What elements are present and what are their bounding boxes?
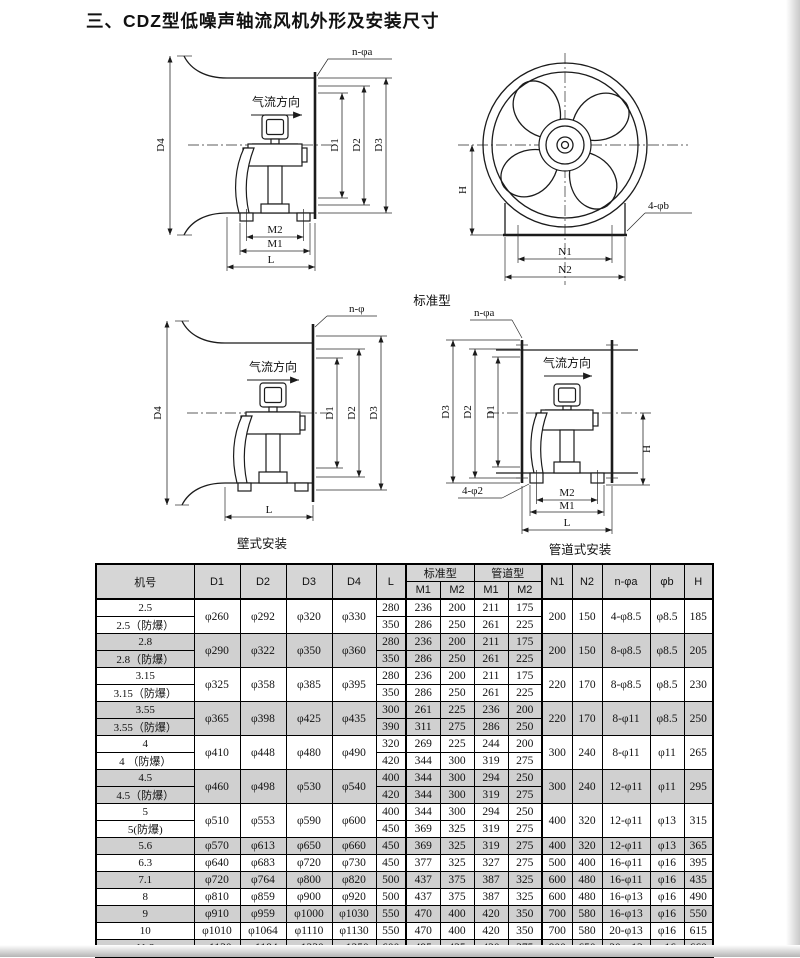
- header-phib: φb: [650, 564, 684, 599]
- d1-cell: φ510: [194, 804, 240, 838]
- h-cell: 365: [684, 838, 713, 855]
- nphia-cell: 4-φ8.5: [602, 599, 650, 634]
- d3-cell: φ650: [286, 838, 332, 855]
- n1-cell: 220: [542, 668, 572, 702]
- m-cell: 261: [406, 702, 440, 719]
- h-cell: 230: [684, 668, 713, 702]
- d2-cell: φ859: [240, 889, 286, 906]
- m-cell: 275: [440, 719, 474, 736]
- m-cell: 294: [474, 770, 508, 787]
- h-cell: 295: [684, 770, 713, 804]
- l-cell: 420: [376, 787, 406, 804]
- n1-cell: 500: [542, 855, 572, 872]
- m-cell: 319: [474, 787, 508, 804]
- dim-label-d1: D1: [324, 406, 336, 419]
- m-cell: 225: [440, 736, 474, 753]
- m-cell: 200: [440, 634, 474, 651]
- d1-cell: φ290: [194, 634, 240, 668]
- table-row: 4.5φ460φ498φ530φ540400344300294250300240…: [96, 770, 713, 787]
- dimension-table: 机号 D1 D2 D3 D4 L 标准型 管道型 N1 N2 n-φa φb H…: [95, 563, 714, 958]
- d1-cell: φ410: [194, 736, 240, 770]
- n1-cell: 700: [542, 906, 572, 923]
- d2-cell: φ398: [240, 702, 286, 736]
- l-cell: 450: [376, 821, 406, 838]
- h-cell: 250: [684, 702, 713, 736]
- d1-cell: φ640: [194, 855, 240, 872]
- h-cell: 265: [684, 736, 713, 770]
- dim-label-m1: M1: [267, 238, 282, 250]
- n2-cell: 150: [572, 634, 602, 668]
- d2-cell: φ358: [240, 668, 286, 702]
- table-row: 10φ1010φ1064φ1110φ1130550470400420350700…: [96, 923, 713, 940]
- standard-side-diagram: 气流方向 D4 D1 D2 D3 n-φa M2 M1 L: [130, 45, 420, 295]
- dim-label-d2: D2: [462, 405, 474, 418]
- m-cell: 200: [508, 702, 542, 719]
- d4-cell: φ540: [332, 770, 376, 804]
- model-cell: 3.15（防爆）: [96, 685, 194, 702]
- m-cell: 236: [406, 599, 440, 617]
- n2-cell: 150: [572, 599, 602, 634]
- n1-cell: 300: [542, 770, 572, 804]
- header-d1: D1: [194, 564, 240, 599]
- flange-holes-label: n-φa: [474, 307, 495, 319]
- phib-cell: φ11: [650, 736, 684, 770]
- wall-mount-diagram: 气流方向 D4 D1 D2 D3 n-φ L: [125, 300, 430, 532]
- m-cell: 377: [406, 855, 440, 872]
- model-cell: 8: [96, 889, 194, 906]
- d4-cell: φ490: [332, 736, 376, 770]
- d3-cell: φ720: [286, 855, 332, 872]
- m-cell: 250: [440, 617, 474, 634]
- m-cell: 311: [406, 719, 440, 736]
- nphia-cell: 16-φ11: [602, 855, 650, 872]
- d4-cell: φ395: [332, 668, 376, 702]
- d4-cell: φ330: [332, 599, 376, 634]
- l-cell: 280: [376, 668, 406, 685]
- table-row: 6.3φ640φ683φ720φ730450377325327275500400…: [96, 855, 713, 872]
- table-row: 8φ810φ859φ900φ92050043737538732560048016…: [96, 889, 713, 906]
- l-cell: 550: [376, 923, 406, 940]
- h-cell: 205: [684, 634, 713, 668]
- d2-cell: φ448: [240, 736, 286, 770]
- nphia-cell: 20-φ13: [602, 923, 650, 940]
- m-cell: 225: [440, 702, 474, 719]
- model-cell: 5(防爆): [96, 821, 194, 838]
- dim-label-d4: D4: [155, 138, 167, 152]
- n2-cell: 480: [572, 889, 602, 906]
- airflow-label: 气流方向: [543, 355, 591, 370]
- m-cell: 225: [508, 651, 542, 668]
- n2-cell: 240: [572, 736, 602, 770]
- nphia-cell: 8-φ11: [602, 736, 650, 770]
- model-cell: 10: [96, 923, 194, 940]
- dim-label-d2: D2: [351, 138, 363, 151]
- model-cell: 4.5: [96, 770, 194, 787]
- m-cell: 236: [474, 702, 508, 719]
- m-cell: 261: [474, 617, 508, 634]
- nphia-cell: 16-φ11: [602, 872, 650, 889]
- dim-label-n2: N2: [558, 264, 571, 276]
- n2-cell: 400: [572, 855, 602, 872]
- m-cell: 250: [508, 804, 542, 821]
- d4-cell: φ820: [332, 872, 376, 889]
- d3-cell: φ800: [286, 872, 332, 889]
- l-cell: 280: [376, 634, 406, 651]
- d3-cell: φ1110: [286, 923, 332, 940]
- m-cell: 269: [406, 736, 440, 753]
- fan-table-body: 2.5φ260φ292φ320φ330280236200211175200150…: [96, 599, 713, 957]
- m-cell: 369: [406, 838, 440, 855]
- header-nphia: n-φa: [602, 564, 650, 599]
- airflow-label: 气流方向: [249, 359, 297, 374]
- nphia-cell: 12-φ11: [602, 838, 650, 855]
- m-cell: 200: [440, 668, 474, 685]
- page-title: 三、CDZ型低噪声轴流风机外形及安装尺寸: [86, 8, 439, 33]
- h-cell: 615: [684, 923, 713, 940]
- m-cell: 300: [440, 753, 474, 770]
- l-cell: 400: [376, 770, 406, 787]
- model-cell: 4 （防爆）: [96, 753, 194, 770]
- phib-cell: φ11: [650, 770, 684, 804]
- m-cell: 327: [474, 855, 508, 872]
- d1-cell: φ570: [194, 838, 240, 855]
- m-cell: 211: [474, 634, 508, 651]
- m-cell: 350: [508, 923, 542, 940]
- h-cell: 550: [684, 906, 713, 923]
- d2-cell: φ498: [240, 770, 286, 804]
- header-duct-type: 管道型: [474, 564, 542, 582]
- model-cell: 2.5（防爆）: [96, 617, 194, 634]
- m-cell: 344: [406, 753, 440, 770]
- l-cell: 400: [376, 804, 406, 821]
- m-cell: 275: [508, 787, 542, 804]
- m-cell: 375: [440, 872, 474, 889]
- m-cell: 344: [406, 787, 440, 804]
- n2-cell: 170: [572, 668, 602, 702]
- h-cell: 185: [684, 599, 713, 634]
- phib-cell: φ8.5: [650, 668, 684, 702]
- m-cell: 387: [474, 872, 508, 889]
- wall-caption: 壁式安装: [222, 533, 302, 552]
- m-cell: 236: [406, 668, 440, 685]
- airflow-label: 气流方向: [252, 94, 300, 109]
- m-cell: 225: [508, 617, 542, 634]
- d1-cell: φ720: [194, 872, 240, 889]
- d4-cell: φ600: [332, 804, 376, 838]
- m-cell: 286: [406, 651, 440, 668]
- flange-holes-label: n-φa: [352, 46, 373, 58]
- m-cell: 437: [406, 872, 440, 889]
- l-cell: 320: [376, 736, 406, 753]
- nphia-cell: 8-φ8.5: [602, 634, 650, 668]
- m-cell: 344: [406, 804, 440, 821]
- phib-cell: φ8.5: [650, 634, 684, 668]
- n2-cell: 320: [572, 838, 602, 855]
- d4-cell: φ920: [332, 889, 376, 906]
- nphia-cell: 8-φ11: [602, 702, 650, 736]
- dim-label-d3: D3: [373, 138, 385, 152]
- header-h: H: [684, 564, 713, 599]
- nphia-cell: 16-φ13: [602, 906, 650, 923]
- d2-cell: φ613: [240, 838, 286, 855]
- header-m2-duct: M2: [508, 582, 542, 600]
- m-cell: 344: [406, 770, 440, 787]
- model-cell: 3.15: [96, 668, 194, 685]
- l-cell: 450: [376, 838, 406, 855]
- model-cell: 3.55: [96, 702, 194, 719]
- document-page: { "title": "三、CDZ型低噪声轴流风机外形及安装尺寸", "capt…: [0, 0, 800, 957]
- d3-cell: φ1000: [286, 906, 332, 923]
- phib-cell: φ13: [650, 804, 684, 838]
- m-cell: 294: [474, 804, 508, 821]
- m-cell: 250: [440, 685, 474, 702]
- m-cell: 275: [508, 838, 542, 855]
- m-cell: 286: [406, 617, 440, 634]
- m-cell: 350: [508, 906, 542, 923]
- d2-cell: φ683: [240, 855, 286, 872]
- m-cell: 286: [406, 685, 440, 702]
- model-cell: 2.8: [96, 634, 194, 651]
- l-cell: 450: [376, 855, 406, 872]
- m-cell: 300: [440, 787, 474, 804]
- model-cell: 2.5: [96, 599, 194, 617]
- n1-cell: 700: [542, 923, 572, 940]
- m-cell: 244: [474, 736, 508, 753]
- d3-cell: φ530: [286, 770, 332, 804]
- h-cell: 395: [684, 855, 713, 872]
- dim-label-m2: M2: [267, 224, 282, 236]
- scan-edge-right: [786, 0, 800, 957]
- n2-cell: 170: [572, 702, 602, 736]
- l-cell: 500: [376, 872, 406, 889]
- m-cell: 319: [474, 753, 508, 770]
- dim-label-d1: D1: [329, 138, 341, 151]
- m-cell: 400: [440, 906, 474, 923]
- d3-cell: φ590: [286, 804, 332, 838]
- header-n2: N2: [572, 564, 602, 599]
- m-cell: 300: [440, 804, 474, 821]
- phib-cell: φ8.5: [650, 599, 684, 634]
- m-cell: 325: [440, 838, 474, 855]
- m-cell: 200: [440, 599, 474, 617]
- l-cell: 420: [376, 753, 406, 770]
- table-row: 5φ510φ553φ590φ60040034430029425040032012…: [96, 804, 713, 821]
- header-m1-duct: M1: [474, 582, 508, 600]
- dim-label-l: L: [268, 254, 275, 266]
- m-cell: 319: [474, 838, 508, 855]
- header-standard-type: 标准型: [406, 564, 474, 582]
- d1-cell: φ910: [194, 906, 240, 923]
- m-cell: 261: [474, 651, 508, 668]
- n1-cell: 200: [542, 599, 572, 634]
- d3-cell: φ900: [286, 889, 332, 906]
- d2-cell: φ764: [240, 872, 286, 889]
- table-row: 7.1φ720φ764φ800φ820500437375387325600480…: [96, 872, 713, 889]
- d4-cell: φ1030: [332, 906, 376, 923]
- table-row: 2.5φ260φ292φ320φ330280236200211175200150…: [96, 599, 713, 617]
- d4-cell: φ730: [332, 855, 376, 872]
- l-cell: 500: [376, 889, 406, 906]
- d2-cell: φ292: [240, 599, 286, 634]
- phib-cell: φ16: [650, 923, 684, 940]
- model-cell: 4.5（防爆）: [96, 787, 194, 804]
- phib-cell: φ16: [650, 889, 684, 906]
- l-cell: 550: [376, 906, 406, 923]
- m-cell: 211: [474, 599, 508, 617]
- d1-cell: φ810: [194, 889, 240, 906]
- n1-cell: 300: [542, 736, 572, 770]
- n1-cell: 400: [542, 838, 572, 855]
- scan-edge-bottom: [0, 945, 800, 957]
- model-cell: 6.3: [96, 855, 194, 872]
- header-n1: N1: [542, 564, 572, 599]
- m-cell: 250: [440, 651, 474, 668]
- nphia-cell: 12-φ11: [602, 770, 650, 804]
- m-cell: 369: [406, 821, 440, 838]
- header-d2: D2: [240, 564, 286, 599]
- m-cell: 286: [474, 719, 508, 736]
- m-cell: 250: [508, 770, 542, 787]
- header-d3: D3: [286, 564, 332, 599]
- d4-cell: φ360: [332, 634, 376, 668]
- m-cell: 325: [440, 855, 474, 872]
- nphia-cell: 16-φ13: [602, 889, 650, 906]
- n1-cell: 220: [542, 702, 572, 736]
- model-cell: 5.6: [96, 838, 194, 855]
- foot-holes-label: 4-φ2: [462, 485, 483, 497]
- m-cell: 420: [474, 906, 508, 923]
- phib-cell: φ13: [650, 838, 684, 855]
- m-cell: 375: [440, 889, 474, 906]
- duct-mount-diagram: 气流方向 D1 D2 D3 H n-φa 4-φ2 M2 M1 L: [430, 300, 730, 540]
- header-m1-std: M1: [406, 582, 440, 600]
- l-cell: 350: [376, 685, 406, 702]
- h-cell: 435: [684, 872, 713, 889]
- d3-cell: φ320: [286, 599, 332, 634]
- n1-cell: 200: [542, 634, 572, 668]
- header-d4: D4: [332, 564, 376, 599]
- l-cell: 350: [376, 651, 406, 668]
- d4-cell: φ660: [332, 838, 376, 855]
- phib-cell: φ16: [650, 906, 684, 923]
- m-cell: 250: [508, 719, 542, 736]
- m-cell: 325: [508, 872, 542, 889]
- model-cell: 2.8（防爆）: [96, 651, 194, 668]
- m-cell: 200: [508, 736, 542, 753]
- n2-cell: 580: [572, 923, 602, 940]
- m-cell: 261: [474, 685, 508, 702]
- duct-caption: 管道式安装: [528, 539, 632, 558]
- dim-label-h: H: [457, 186, 469, 194]
- d4-cell: φ1130: [332, 923, 376, 940]
- table-row: 3.15φ325φ358φ385φ39528023620021117522017…: [96, 668, 713, 685]
- n1-cell: 400: [542, 804, 572, 838]
- dim-label-m2: M2: [559, 487, 574, 499]
- dim-label-l: L: [266, 504, 273, 516]
- n1-cell: 600: [542, 889, 572, 906]
- n2-cell: 320: [572, 804, 602, 838]
- n2-cell: 480: [572, 872, 602, 889]
- d2-cell: φ553: [240, 804, 286, 838]
- m-cell: 300: [440, 770, 474, 787]
- m-cell: 319: [474, 821, 508, 838]
- model-cell: 3.55（防爆）: [96, 719, 194, 736]
- model-cell: 9: [96, 906, 194, 923]
- dim-label-d3: D3: [368, 406, 380, 420]
- header-m2-std: M2: [440, 582, 474, 600]
- l-cell: 300: [376, 702, 406, 719]
- phib-cell: φ16: [650, 872, 684, 889]
- m-cell: 175: [508, 668, 542, 685]
- dim-label-d2: D2: [346, 406, 358, 419]
- m-cell: 387: [474, 889, 508, 906]
- table-row: 3.55φ365φ398φ425φ43530026122523620022017…: [96, 702, 713, 719]
- header-model: 机号: [96, 564, 194, 599]
- d3-cell: φ480: [286, 736, 332, 770]
- phib-cell: φ16: [650, 855, 684, 872]
- m-cell: 275: [508, 821, 542, 838]
- dim-label-n1: N1: [558, 246, 571, 258]
- dim-label-d4: D4: [152, 406, 164, 420]
- table-row: 4φ410φ448φ480φ4903202692252442003002408-…: [96, 736, 713, 753]
- m-cell: 275: [508, 855, 542, 872]
- table-row: 9φ910φ959φ1000φ1030550470400420350700580…: [96, 906, 713, 923]
- m-cell: 211: [474, 668, 508, 685]
- l-cell: 350: [376, 617, 406, 634]
- m-cell: 175: [508, 599, 542, 617]
- flange-holes-label: n-φ: [349, 303, 365, 315]
- m-cell: 175: [508, 634, 542, 651]
- dim-label-l: L: [564, 517, 571, 529]
- base-holes-label: 4-φb: [648, 200, 670, 212]
- d3-cell: φ425: [286, 702, 332, 736]
- nphia-cell: 12-φ11: [602, 804, 650, 838]
- d3-cell: φ350: [286, 634, 332, 668]
- nphia-cell: 8-φ8.5: [602, 668, 650, 702]
- m-cell: 236: [406, 634, 440, 651]
- dim-label-h: H: [641, 445, 653, 453]
- model-cell: 4: [96, 736, 194, 753]
- standard-front-diagram: H 4-φb N1 N2: [420, 45, 750, 295]
- d1-cell: φ260: [194, 599, 240, 634]
- d1-cell: φ460: [194, 770, 240, 804]
- table-header: 机号 D1 D2 D3 D4 L 标准型 管道型 N1 N2 n-φa φb H…: [96, 564, 713, 599]
- l-cell: 280: [376, 599, 406, 617]
- m-cell: 275: [508, 753, 542, 770]
- m-cell: 400: [440, 923, 474, 940]
- m-cell: 325: [508, 889, 542, 906]
- d2-cell: φ959: [240, 906, 286, 923]
- model-cell: 5: [96, 804, 194, 821]
- dim-label-d3: D3: [440, 405, 452, 419]
- l-cell: 390: [376, 719, 406, 736]
- n1-cell: 600: [542, 872, 572, 889]
- m-cell: 225: [508, 685, 542, 702]
- d4-cell: φ435: [332, 702, 376, 736]
- table-row: 5.6φ570φ613φ650φ660450369325319275400320…: [96, 838, 713, 855]
- d2-cell: φ322: [240, 634, 286, 668]
- dim-label-m1: M1: [559, 500, 574, 512]
- d3-cell: φ385: [286, 668, 332, 702]
- header-l: L: [376, 564, 406, 599]
- table-row: 2.8φ290φ322φ350φ360280236200211175200150…: [96, 634, 713, 651]
- h-cell: 490: [684, 889, 713, 906]
- m-cell: 470: [406, 923, 440, 940]
- m-cell: 470: [406, 906, 440, 923]
- n2-cell: 240: [572, 770, 602, 804]
- d2-cell: φ1064: [240, 923, 286, 940]
- model-cell: 7.1: [96, 872, 194, 889]
